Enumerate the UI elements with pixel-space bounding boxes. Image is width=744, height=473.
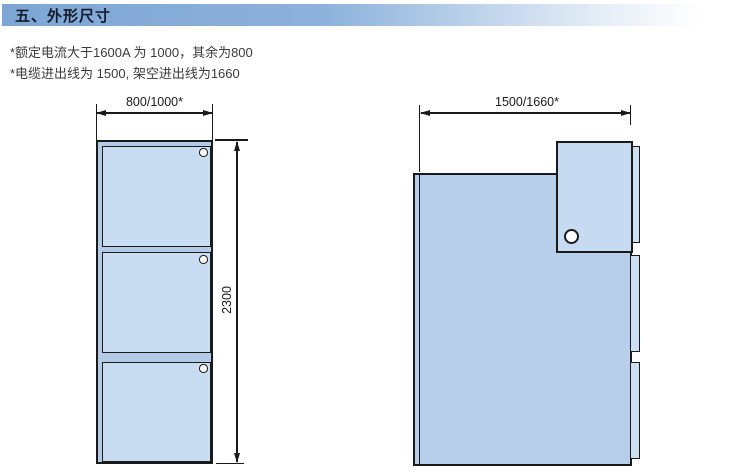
front-door-1 <box>102 146 211 247</box>
front-height-ext-top <box>215 139 248 141</box>
section-header-bar: 五、外形尺寸 <box>2 4 722 26</box>
dim-arrow-left-icon <box>420 110 430 116</box>
side-depth-ext-left <box>419 105 421 172</box>
side-rear-strip-3 <box>630 362 640 459</box>
dim-arrow-down-icon <box>234 453 240 463</box>
door-handle-icon <box>199 148 208 157</box>
dim-arrow-up-icon <box>234 141 240 151</box>
side-body-front-edge-line <box>419 175 421 464</box>
side-depth-ext-right <box>630 105 632 125</box>
front-door-3 <box>102 362 211 462</box>
front-width-ext-right <box>212 104 214 140</box>
section-title: 五、外形尺寸 <box>2 5 111 26</box>
front-width-ext-left <box>96 104 98 140</box>
door-handle-icon <box>199 255 208 264</box>
side-panel-handle-icon <box>564 229 579 244</box>
front-height-dim-label: 2300 <box>220 280 234 320</box>
front-width-dim-label: 800/1000* <box>96 95 213 109</box>
side-depth-dim-label: 1500/1660* <box>466 95 588 109</box>
note-cable-entry: *电缆进出线为 1500, 架空进出线为1660 <box>10 63 240 82</box>
front-height-ext-bottom <box>216 463 244 465</box>
front-width-dim-line <box>97 112 212 114</box>
door-handle-icon <box>199 364 208 373</box>
front-door-2 <box>102 252 211 353</box>
note-rated-current: *额定电流大于1600A 为 1000，其余为800 <box>10 42 253 61</box>
front-height-dim-line <box>236 142 238 462</box>
catalog-page: 五、外形尺寸 *额定电流大于1600A 为 1000，其余为800 *电缆进出线… <box>0 0 744 473</box>
dim-arrow-left-icon <box>96 110 106 116</box>
side-depth-dim-line <box>421 112 630 114</box>
side-rear-strip-2 <box>630 255 640 352</box>
